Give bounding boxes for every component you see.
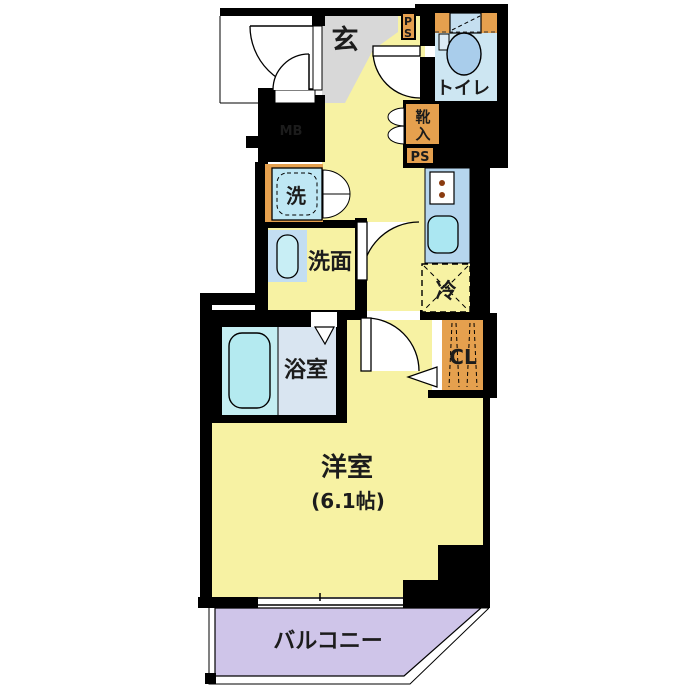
meter-box-label: MB [280,124,303,139]
main-room-door-leaf [361,318,371,371]
burner-dot-2 [439,192,445,198]
entrance-sill [275,90,315,103]
floor-plan-canvas: 玄 トイレ 靴 入 P S PS MB 洗 洗面 冷 CL 浴室 洋室 (6.1… [0,0,700,700]
main-room-size-label: (6.1帖) [311,489,385,513]
toilet-bowl-icon [447,33,481,75]
bathroom-label: 浴室 [284,357,328,383]
burner-dot-1 [439,180,445,186]
toilet-door-leaf [373,46,420,56]
fridge-label: 冷 [436,279,457,303]
bathtub-icon [229,333,270,408]
washroom-label: 洗面 [308,250,352,275]
rail-post-top [205,597,216,608]
ps-top-label-s: S [404,27,412,40]
washroom-door-leaf [357,222,367,280]
floor-plan-drawing: 玄 トイレ 靴 入 P S PS MB 洗 洗面 冷 CL 浴室 洋室 (6.1… [0,0,700,700]
vanity-sink-icon [277,235,298,278]
balcony-label: バルコニー [273,629,383,654]
toilet-label: トイレ [436,78,490,99]
shoe-cabinet-label-2: 入 [415,125,430,143]
kitchen-sink-icon [428,216,458,253]
washer-label: 洗 [286,184,306,208]
ps-mid-label: PS [411,150,430,165]
closet-label: CL [449,345,477,369]
rail-post-bottom [205,673,216,684]
stove-icon [430,172,454,204]
kitchen [425,168,470,263]
genkan-label: 玄 [332,24,359,56]
bathroom-doorway [311,312,337,327]
toilet-counter-left [435,13,450,33]
toilet-counter-right [481,13,497,33]
door-jamb [313,26,322,90]
shoe-cabinet-label-1: 靴 [415,108,430,126]
main-room-label: 洋室 [321,452,373,483]
